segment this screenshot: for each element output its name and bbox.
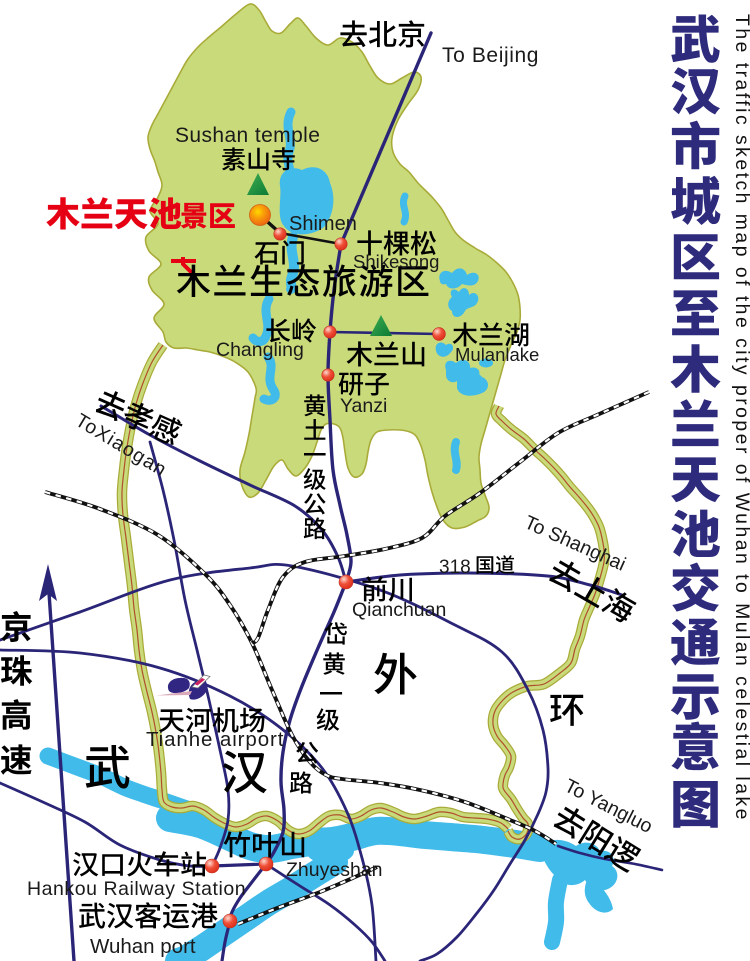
svg-text:Shimen: Shimen [289, 213, 357, 235]
svg-text:Wuhan port: Wuhan port [90, 935, 196, 958]
svg-text:Zhuyeshan: Zhuyeshan [286, 859, 382, 881]
svg-text:Qianchuan: Qianchuan [352, 599, 446, 621]
svg-text:Yanzi: Yanzi [340, 395, 387, 417]
svg-text:318: 318 [439, 557, 471, 578]
svg-text:Changling: Changling [216, 339, 304, 361]
svg-text:Mulanlake: Mulanlake [455, 344, 539, 365]
svg-text:Hankou Railway Station: Hankou Railway Station [27, 878, 246, 900]
svg-text:The traffic sketch map of the: The traffic sketch map of the city prope… [731, 14, 750, 822]
svg-text:Sushan temple: Sushan temple [175, 124, 320, 147]
svg-text:Tianhe airport: Tianhe airport [146, 728, 284, 751]
svg-text:Shikesong: Shikesong [353, 251, 439, 272]
svg-text:To Beijing: To Beijing [442, 44, 539, 67]
